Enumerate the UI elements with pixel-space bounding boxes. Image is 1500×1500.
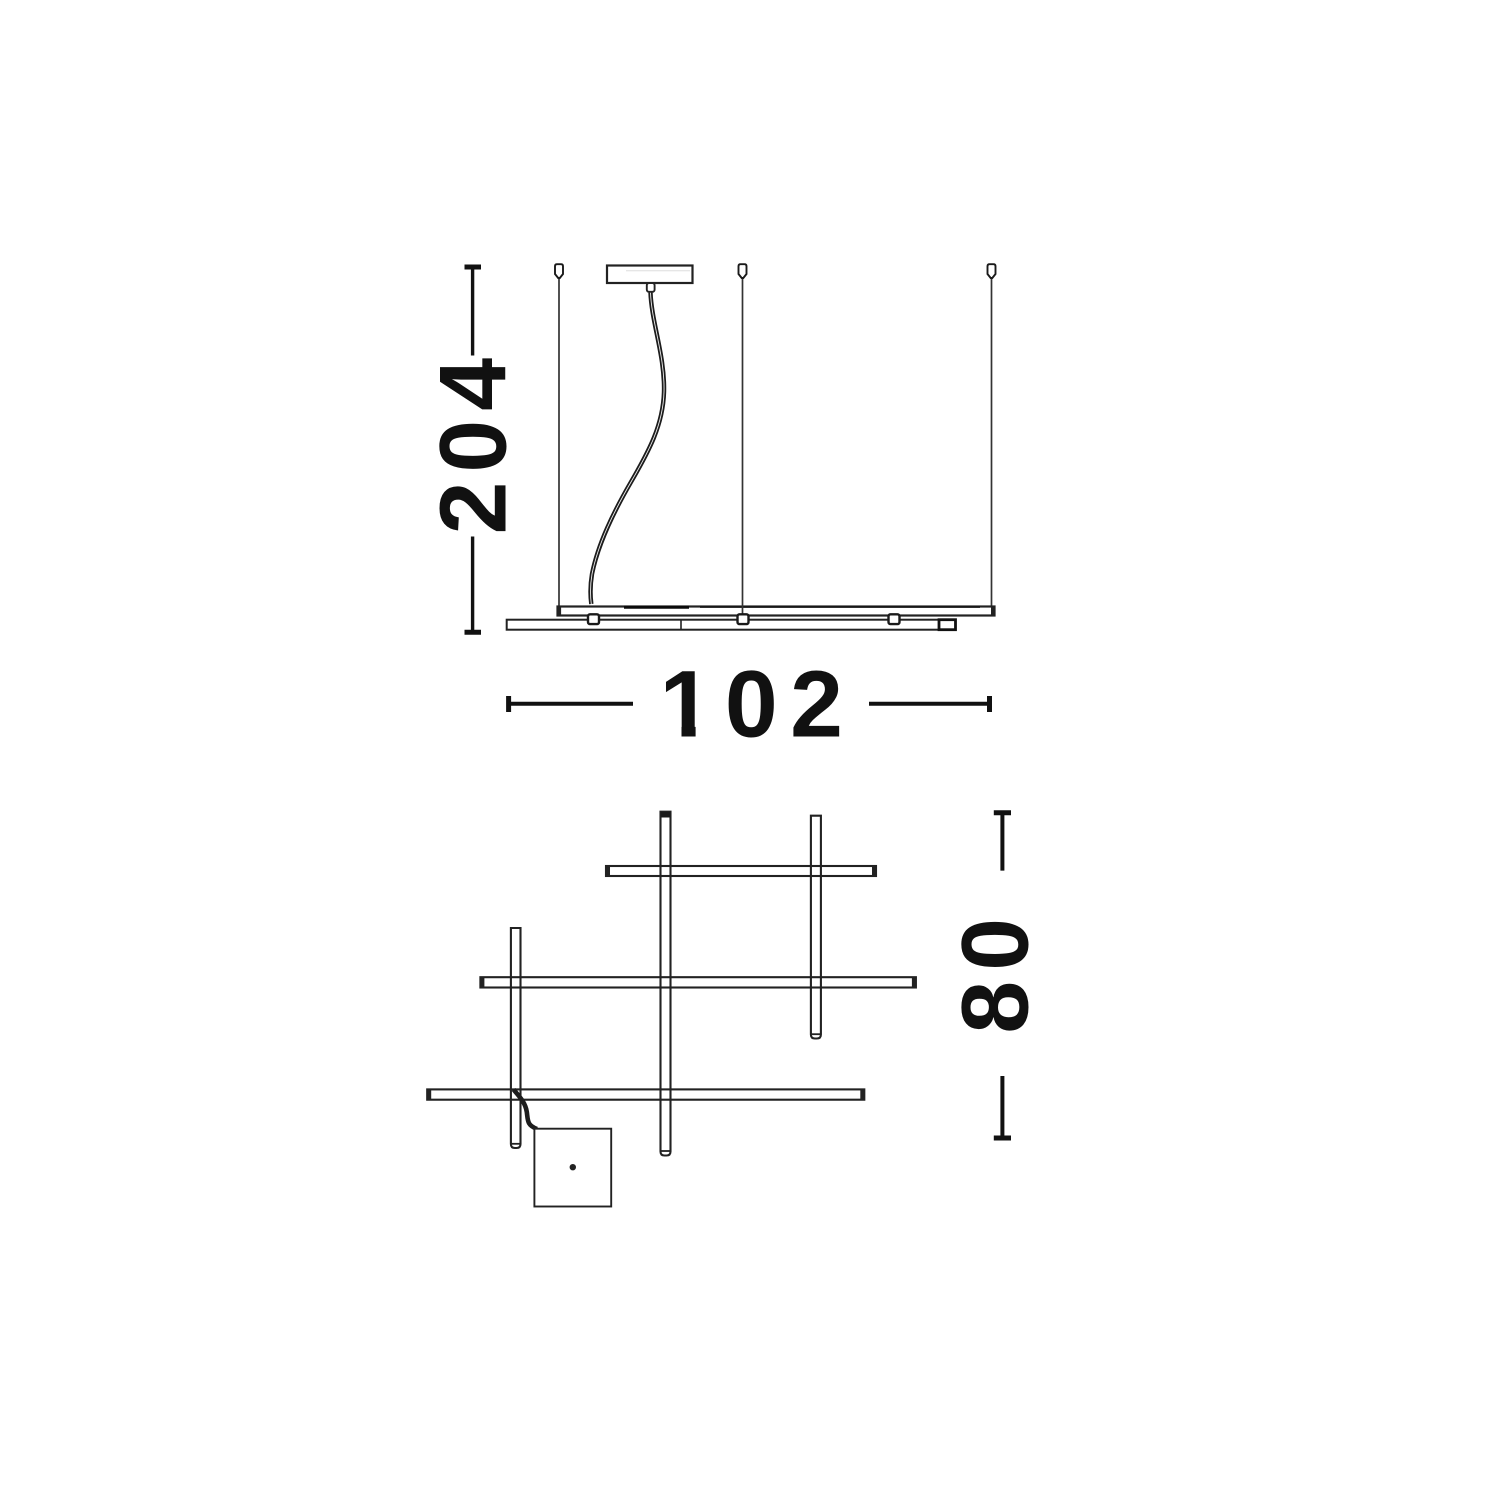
svg-text:80: 80 [943, 908, 1049, 1034]
svg-text:102: 102 [660, 651, 856, 757]
svg-text:204: 204 [421, 349, 527, 535]
